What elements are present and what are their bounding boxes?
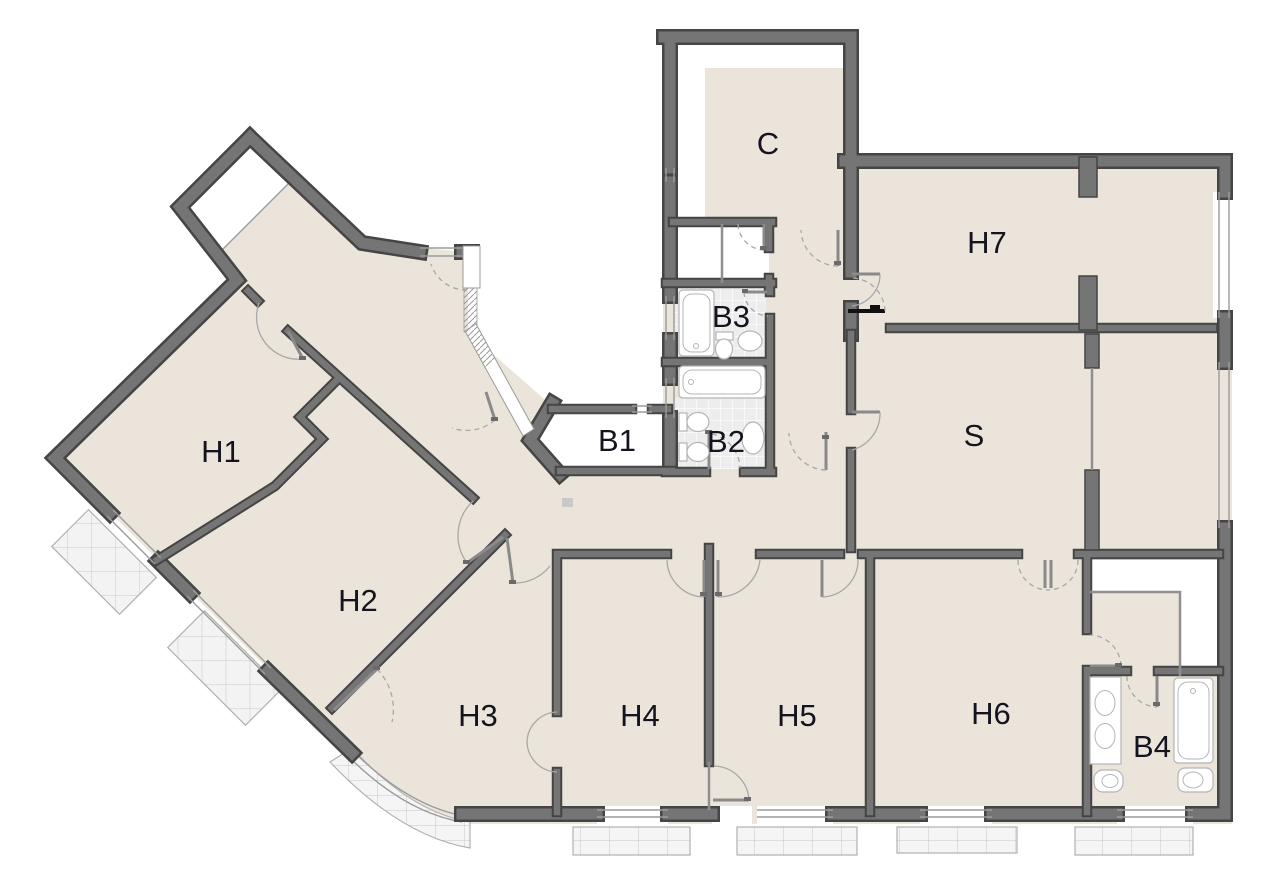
bathtub-b4 (1174, 678, 1213, 763)
bidet-b4 (1094, 770, 1123, 792)
bidet-b2 (679, 443, 709, 462)
room-label-c: C (757, 126, 779, 161)
glass-partition-stud (1085, 334, 1099, 368)
room-label-b4: B4 (1133, 729, 1171, 764)
room-label-b3: B3 (712, 299, 750, 334)
balcony-h5 (737, 827, 857, 855)
vent-mark (562, 498, 573, 507)
balcony-b4 (1075, 827, 1193, 855)
window-frame (463, 246, 480, 288)
room-label-s: S (964, 418, 985, 453)
balcony-h4 (573, 827, 690, 855)
room-label-h1: H1 (201, 434, 241, 469)
floor-plan-page: H1 H2 H3 H4 H5 H6 H7 S C B1 B2 B3 B4 (0, 0, 1276, 876)
sink-b2 (742, 422, 764, 454)
room-label-h2: H2 (338, 583, 378, 618)
room-label-h3: H3 (458, 698, 498, 733)
toilet-b2 (679, 413, 709, 432)
balcony-h6 (897, 827, 1017, 853)
vanity-b4 (1090, 677, 1121, 764)
glass-partition-stud (1085, 470, 1099, 550)
toilet-b3 (716, 332, 734, 359)
room-label-h4: H4 (620, 698, 660, 733)
room-c-margin-top (677, 44, 843, 68)
pillar (1079, 276, 1097, 330)
sink-b3 (738, 331, 762, 351)
room-label-b2: B2 (707, 424, 745, 459)
bathtub-b2 (679, 366, 765, 398)
room-c-margin-left (677, 44, 705, 222)
room-label-h7: H7 (967, 225, 1007, 260)
room-label-h5: H5 (777, 698, 817, 733)
pillar (1079, 157, 1097, 197)
toilet-b4 (1178, 768, 1213, 792)
floor-plan-drawing: H1 H2 H3 H4 H5 H6 H7 S C B1 B2 B3 B4 (0, 0, 1276, 876)
bathtub-b3 (679, 290, 714, 356)
room-label-b1: B1 (598, 423, 636, 458)
room-label-h6: H6 (971, 696, 1011, 731)
